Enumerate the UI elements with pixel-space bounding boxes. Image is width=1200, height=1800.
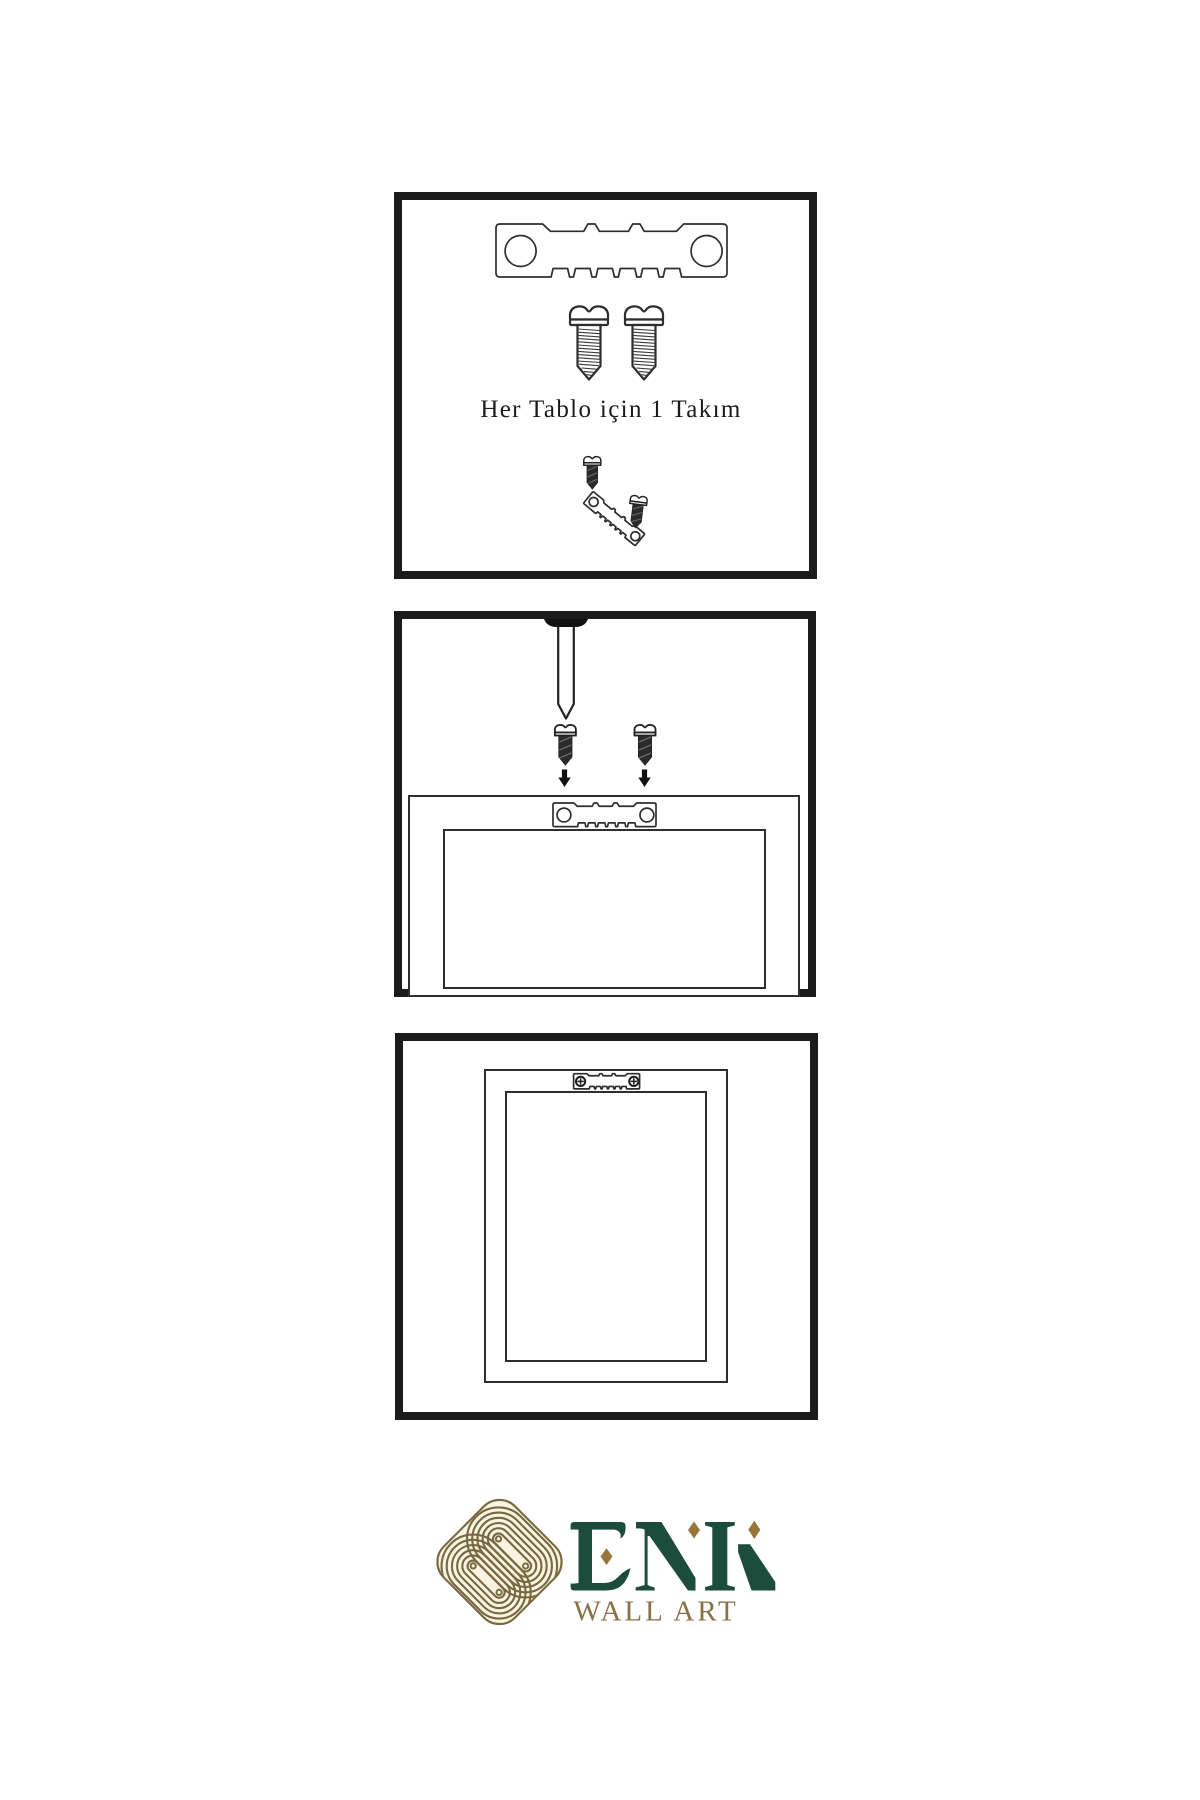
svg-text:WALL ART: WALL ART: [573, 1596, 738, 1628]
svg-text:Her Tablo için 1 Takım: Her Tablo için 1 Takım: [480, 396, 741, 423]
